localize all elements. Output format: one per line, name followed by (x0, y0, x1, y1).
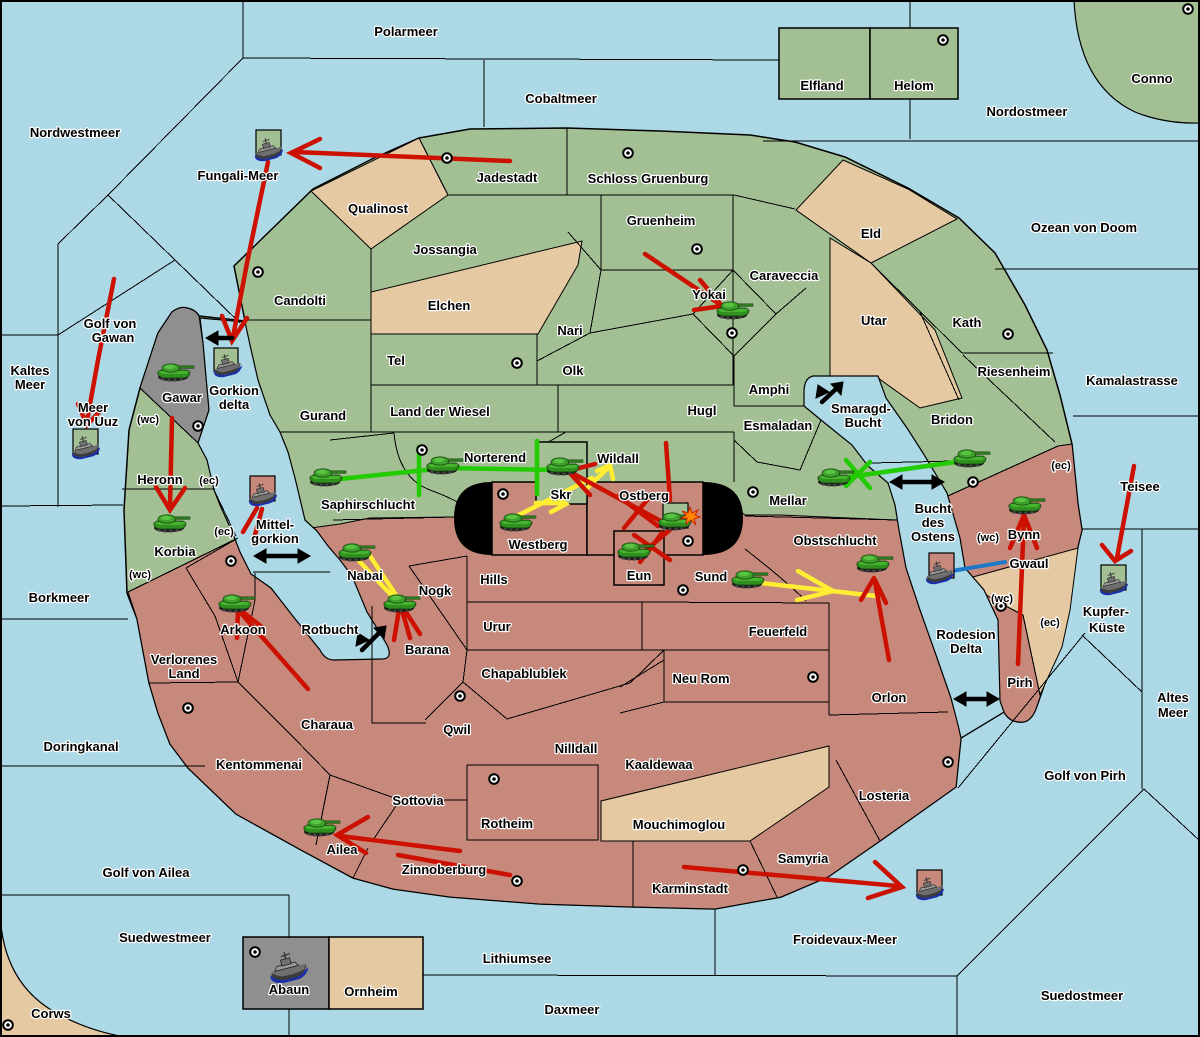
svg-text:Yokai: Yokai (692, 287, 726, 302)
svg-text:Suedostmeer: Suedostmeer (1041, 988, 1123, 1003)
svg-text:Conno: Conno (1131, 71, 1172, 86)
svg-text:Meer: Meer (15, 377, 45, 392)
svg-text:Teisee: Teisee (1120, 479, 1160, 494)
svg-text:Fungali-Meer: Fungali-Meer (198, 168, 279, 183)
svg-text:von Uuz: von Uuz (68, 414, 119, 429)
svg-text:Karminstadt: Karminstadt (652, 881, 729, 896)
svg-text:Zinnoberburg: Zinnoberburg (402, 862, 487, 877)
svg-text:Gorkion: Gorkion (209, 383, 259, 398)
svg-text:Bynn: Bynn (1008, 527, 1041, 542)
svg-text:Orlon: Orlon (872, 690, 907, 705)
svg-text:Olk: Olk (563, 363, 585, 378)
svg-text:des: des (922, 515, 944, 530)
svg-text:Gawar: Gawar (162, 390, 202, 405)
svg-text:Kentommenai: Kentommenai (216, 757, 302, 772)
svg-text:Lithiumsee: Lithiumsee (483, 951, 552, 966)
svg-text:Feuerfeld: Feuerfeld (749, 624, 808, 639)
svg-text:Mellar: Mellar (769, 493, 807, 508)
svg-text:Kupfer-: Kupfer- (1083, 604, 1129, 619)
svg-text:Riesenheim: Riesenheim (978, 364, 1051, 379)
svg-text:Nordwestmeer: Nordwestmeer (30, 125, 120, 140)
svg-text:Eld: Eld (861, 226, 881, 241)
svg-text:Qualinost: Qualinost (348, 201, 409, 216)
svg-text:Losteria: Losteria (859, 788, 910, 803)
svg-text:(ec): (ec) (1040, 617, 1060, 629)
svg-text:gorkion: gorkion (251, 531, 299, 546)
svg-text:Polarmeer: Polarmeer (374, 24, 438, 39)
svg-text:Westberg: Westberg (509, 537, 568, 552)
svg-text:Abaun: Abaun (269, 982, 310, 997)
svg-text:Samyria: Samyria (778, 851, 829, 866)
svg-text:Suedwestmeer: Suedwestmeer (119, 930, 211, 945)
svg-text:Bridon: Bridon (931, 412, 973, 427)
svg-text:Cobaltmeer: Cobaltmeer (525, 91, 597, 106)
svg-text:Kath: Kath (953, 315, 982, 330)
svg-text:Arkoon: Arkoon (220, 622, 266, 637)
svg-text:Golf von: Golf von (84, 316, 137, 331)
svg-text:Korbia: Korbia (154, 544, 196, 559)
svg-text:Meer: Meer (1158, 705, 1188, 720)
svg-text:Candolti: Candolti (274, 293, 326, 308)
svg-text:Amphi: Amphi (749, 382, 789, 397)
svg-text:Küste: Küste (1089, 620, 1125, 635)
svg-text:Mouchimoglou: Mouchimoglou (633, 817, 725, 832)
svg-text:Neu Rom: Neu Rom (672, 671, 729, 686)
svg-text:Meer: Meer (78, 400, 108, 415)
svg-text:Nogk: Nogk (419, 583, 452, 598)
svg-text:Barana: Barana (405, 642, 450, 657)
svg-text:Jadestadt: Jadestadt (477, 170, 538, 185)
svg-text:Urur: Urur (483, 619, 510, 634)
svg-text:(wc): (wc) (991, 593, 1013, 605)
svg-text:Nordostmeer: Nordostmeer (987, 104, 1068, 119)
svg-text:Jossangia: Jossangia (413, 242, 477, 257)
svg-text:Daxmeer: Daxmeer (545, 1002, 600, 1017)
svg-text:Land: Land (168, 666, 199, 681)
svg-text:Hills: Hills (480, 572, 507, 587)
svg-text:Altes: Altes (1157, 690, 1189, 705)
svg-text:Sund: Sund (695, 569, 728, 584)
svg-text:Heronn: Heronn (137, 472, 183, 487)
svg-text:Rodesion: Rodesion (936, 627, 995, 642)
svg-text:Doringkanal: Doringkanal (43, 739, 118, 754)
svg-text:Elfland: Elfland (800, 78, 843, 93)
svg-text:Obstschlucht: Obstschlucht (793, 533, 877, 548)
svg-text:Esmaladan: Esmaladan (744, 418, 813, 433)
svg-text:Borkmeer: Borkmeer (29, 590, 90, 605)
svg-text:Eun: Eun (627, 568, 652, 583)
svg-text:(ec): (ec) (199, 475, 219, 487)
svg-text:(wc): (wc) (137, 414, 159, 426)
svg-text:Land der Wiesel: Land der Wiesel (390, 404, 490, 419)
svg-text:Norterend: Norterend (464, 450, 526, 465)
svg-text:Schloss Gruenburg: Schloss Gruenburg (588, 171, 709, 186)
svg-text:(wc): (wc) (129, 569, 151, 581)
svg-text:Chapablublek: Chapablublek (481, 666, 567, 681)
svg-text:Caraveccia: Caraveccia (750, 268, 819, 283)
svg-text:Skr: Skr (551, 487, 572, 502)
svg-text:delta: delta (219, 397, 250, 412)
svg-text:Corws: Corws (31, 1006, 71, 1021)
svg-text:Gwaul: Gwaul (1009, 556, 1048, 571)
svg-text:Ailea: Ailea (326, 842, 358, 857)
svg-text:Tel: Tel (387, 353, 405, 368)
svg-text:Rotbucht: Rotbucht (301, 622, 359, 637)
svg-text:Elchen: Elchen (428, 298, 471, 313)
svg-text:Gurand: Gurand (300, 408, 346, 423)
svg-text:Hugl: Hugl (688, 403, 717, 418)
svg-text:Utar: Utar (861, 313, 887, 328)
svg-text:Sottovia: Sottovia (392, 793, 444, 808)
svg-text:Kaaldewaa: Kaaldewaa (625, 757, 693, 772)
svg-text:Rotheim: Rotheim (481, 816, 533, 831)
svg-text:Kaltes: Kaltes (10, 363, 49, 378)
svg-text:Ostens: Ostens (911, 529, 955, 544)
svg-text:Bucht: Bucht (845, 415, 883, 430)
svg-text:Delta: Delta (950, 641, 983, 656)
svg-text:Smaragd-: Smaragd- (831, 401, 891, 416)
svg-text:Qwil: Qwil (443, 722, 470, 737)
svg-text:Gawan: Gawan (92, 330, 135, 345)
svg-text:(ec): (ec) (214, 526, 234, 538)
svg-text:Froidevaux-Meer: Froidevaux-Meer (793, 932, 897, 947)
svg-text:(ec): (ec) (1051, 460, 1071, 472)
svg-text:Saphirschlucht: Saphirschlucht (321, 497, 416, 512)
svg-text:Nari: Nari (557, 323, 582, 338)
svg-text:(wc): (wc) (977, 532, 999, 544)
svg-text:Wildall: Wildall (597, 451, 639, 466)
svg-text:Gruenheim: Gruenheim (627, 213, 696, 228)
svg-text:Mittel-: Mittel- (256, 517, 294, 532)
svg-text:Helom: Helom (894, 78, 934, 93)
svg-text:Verlorenes: Verlorenes (151, 652, 218, 667)
svg-text:Bucht: Bucht (915, 501, 953, 516)
svg-text:Ostberg: Ostberg (619, 488, 669, 503)
svg-text:Charaua: Charaua (301, 717, 354, 732)
svg-text:Golf von Pirh: Golf von Pirh (1044, 768, 1126, 783)
svg-text:Kamalastrasse: Kamalastrasse (1086, 373, 1178, 388)
svg-text:Pirh: Pirh (1007, 675, 1032, 690)
svg-text:Nilldall: Nilldall (555, 741, 598, 756)
svg-text:Ornheim: Ornheim (344, 984, 397, 999)
svg-text:Golf von Ailea: Golf von Ailea (103, 865, 191, 880)
svg-text:Ozean von Doom: Ozean von Doom (1031, 220, 1137, 235)
svg-text:Nabai: Nabai (347, 568, 382, 583)
